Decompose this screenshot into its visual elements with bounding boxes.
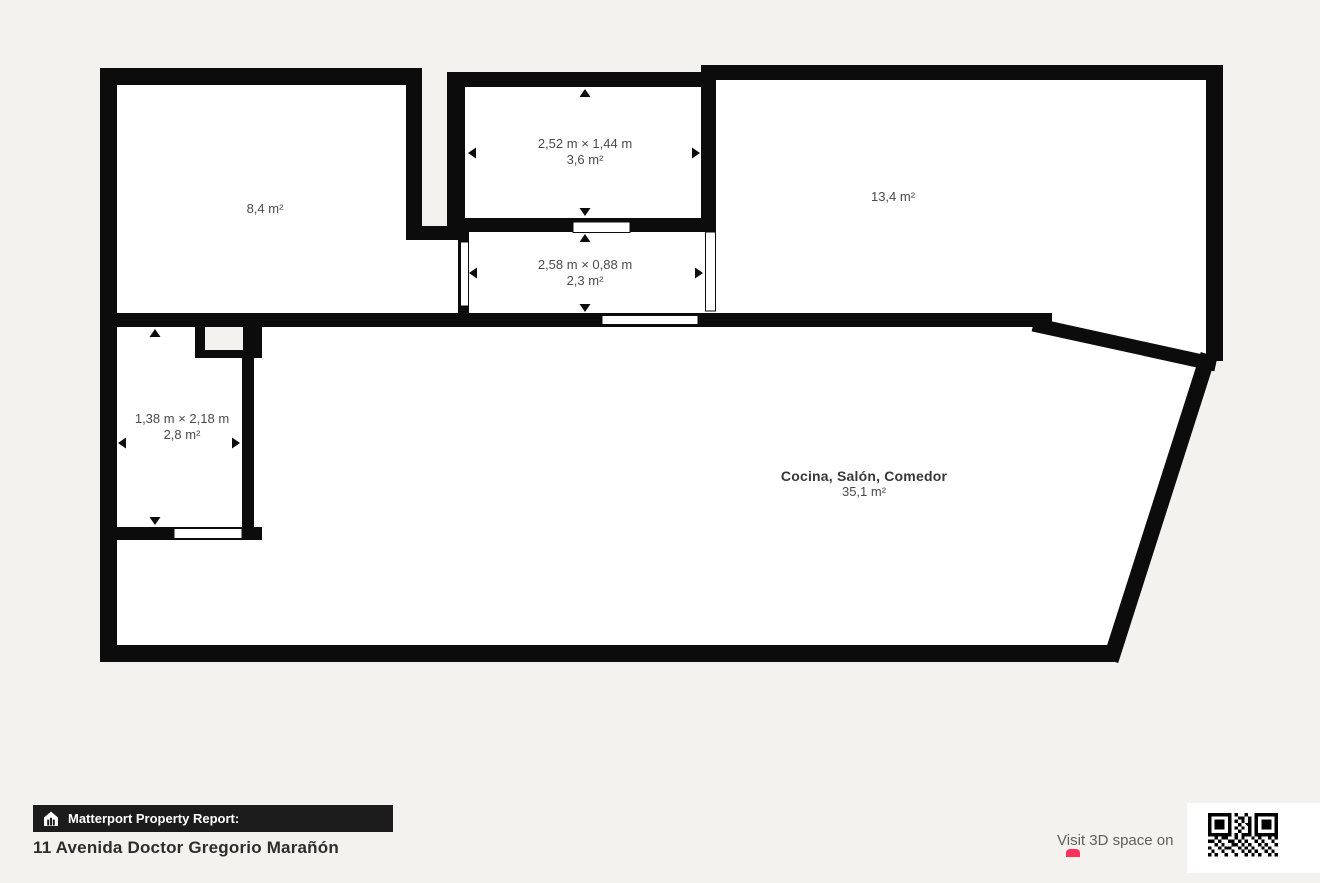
floor-plan: 8,4 m² 2,52 m × 1,44 m 3,6 m² 13,4 m² 2,… bbox=[0, 0, 1320, 790]
room-area: 35,1 m² bbox=[781, 484, 947, 500]
room-label-main-living: Cocina, Salón, Comedor 35,1 m² bbox=[781, 468, 947, 500]
qr-code-box bbox=[1187, 803, 1320, 873]
room-label-top-middle: 2,52 m × 1,44 m 3,6 m² bbox=[538, 136, 632, 168]
room-area: 13,4 m² bbox=[871, 189, 915, 205]
room-label-top-right: 13,4 m² bbox=[871, 189, 915, 205]
room-label-small-left: 1,38 m × 2,18 m 2,8 m² bbox=[135, 411, 229, 443]
floor-plan-svg bbox=[0, 0, 1320, 790]
visit-3d-text: Visit 3D space on bbox=[1057, 832, 1173, 849]
room-area: 2,3 m² bbox=[538, 273, 632, 289]
room-label-top-left: 8,4 m² bbox=[247, 201, 284, 217]
report-badge: Matterport Property Report: bbox=[33, 805, 393, 832]
room-label-hallway: 2,58 m × 0,88 m 2,3 m² bbox=[538, 257, 632, 289]
house-icon bbox=[43, 811, 59, 827]
room-dimensions: 2,58 m × 0,88 m bbox=[538, 257, 632, 273]
property-address: 11 Avenida Doctor Gregorio Marañón bbox=[33, 838, 339, 858]
report-badge-label: Matterport Property Report: bbox=[68, 811, 239, 826]
room-area: 2,8 m² bbox=[135, 427, 229, 443]
property-report-page: { "floorplan": { "rooms": [ { "id": "roo… bbox=[0, 0, 1320, 854]
room-dimensions: 2,52 m × 1,44 m bbox=[538, 136, 632, 152]
room-name: Cocina, Salón, Comedor bbox=[781, 468, 947, 484]
room-dimensions: 1,38 m × 2,18 m bbox=[135, 411, 229, 427]
exterior-notch bbox=[205, 327, 243, 350]
matterport-logo-icon bbox=[1066, 849, 1080, 857]
qr-code-icon bbox=[1208, 813, 1278, 883]
room-area: 3,6 m² bbox=[538, 152, 632, 168]
floor-areas bbox=[100, 65, 1223, 657]
room-area: 8,4 m² bbox=[247, 201, 284, 217]
